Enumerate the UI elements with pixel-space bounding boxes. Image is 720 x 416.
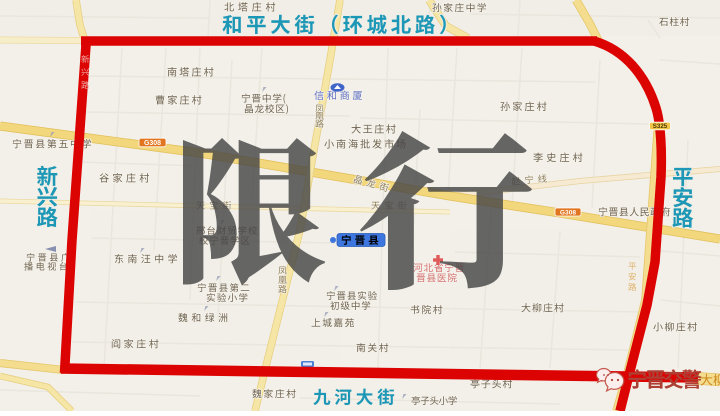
svg-text:G308: G308: [560, 209, 576, 216]
svg-text:S325: S325: [653, 123, 668, 130]
svg-text:G308: G308: [144, 140, 161, 147]
